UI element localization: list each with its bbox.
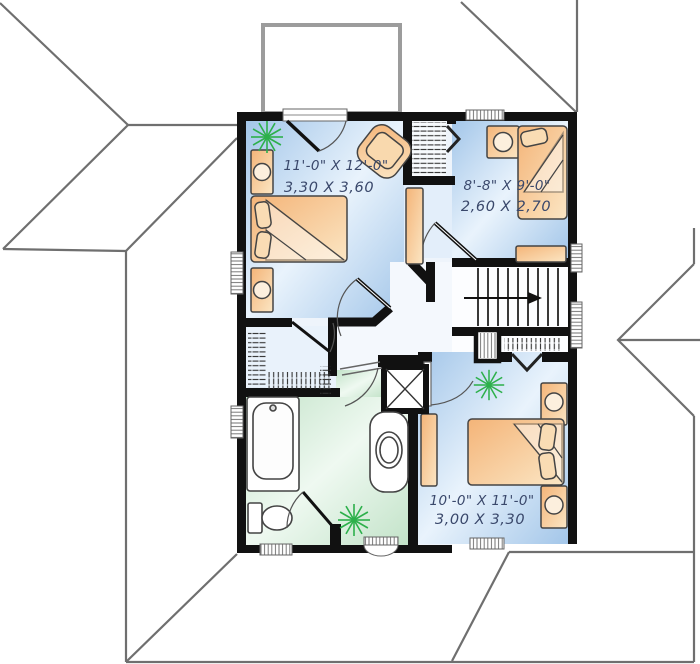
hall-dresser — [406, 188, 423, 264]
duct-chase — [476, 330, 499, 361]
window-right-stairs-1 — [571, 244, 582, 272]
faucet-icon — [270, 405, 276, 411]
window-right-stairs-2 — [571, 302, 582, 348]
dormer-balcony — [263, 25, 400, 113]
floor-plan-drawing: 11'-0" X 12'-0" 3,30 X 3,60 8'-8" X 9'-0… — [0, 0, 700, 664]
tall-dresser — [421, 414, 437, 486]
roof-outline-lower-right — [452, 552, 694, 662]
lamp-icon — [254, 164, 271, 181]
bedroom-1-dimensions-imperial: 11'-0" X 12'-0" — [284, 158, 389, 174]
pillow — [254, 201, 271, 229]
vanity-sink — [370, 412, 408, 492]
lamp-icon — [494, 133, 513, 152]
pillow — [538, 452, 556, 480]
floor-plan-page: 11'-0" X 12'-0" 3,30 X 3,60 8'-8" X 9'-0… — [0, 0, 700, 664]
pillow — [538, 423, 556, 451]
double-bed — [468, 419, 564, 485]
lamp-icon — [254, 282, 271, 299]
double-bed — [251, 196, 347, 262]
window-bottom-bedroom3 — [470, 538, 504, 549]
dresser — [516, 246, 566, 262]
pillow — [254, 231, 271, 259]
window-left-bedroom1 — [231, 252, 243, 294]
lamp-icon — [545, 496, 563, 514]
linen-closet — [384, 367, 426, 411]
window-top-dormer — [283, 109, 347, 121]
bedroom-3-dimensions-metric: 3,00 X 3,30 — [435, 512, 525, 528]
toilet — [248, 503, 292, 533]
bedroom-1-dimensions-metric: 3,30 X 3,60 — [284, 180, 374, 196]
window-bottom-bath — [260, 544, 292, 555]
bathtub — [247, 397, 299, 491]
window-left-bathroom — [231, 406, 243, 438]
bedroom-2-dimensions-metric: 2,60 X 2,70 — [461, 199, 551, 215]
window-top-right — [466, 110, 504, 120]
lamp-icon — [545, 393, 563, 411]
bedroom-3-dimensions-imperial: 10'-0" X 11'-0" — [430, 493, 535, 509]
bedroom-2-dimensions-imperial: 8'-8" X 9'-0" — [464, 178, 551, 194]
window-bottom-bow — [364, 537, 398, 556]
